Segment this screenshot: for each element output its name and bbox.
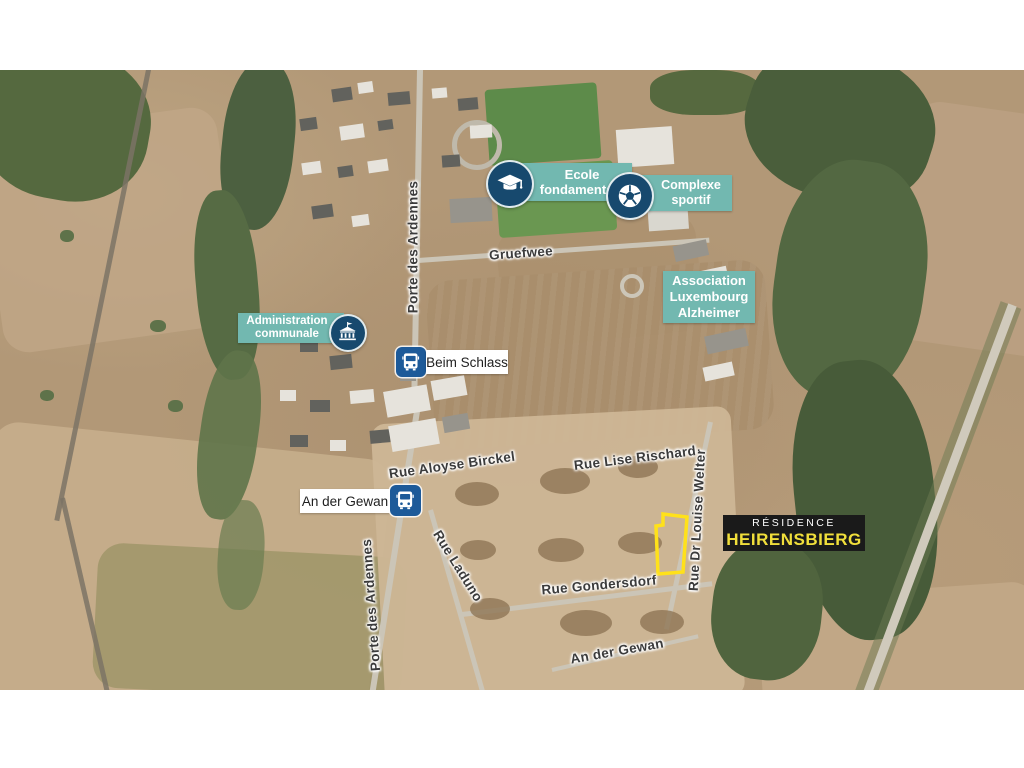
bus-stop-beim-schlass-marker: [396, 347, 426, 377]
football-pitch: [484, 82, 601, 166]
poi-label-administration-communale: Administration communale: [238, 313, 344, 343]
building: [351, 214, 369, 227]
dirt-mound: [640, 610, 684, 634]
building: [339, 123, 365, 140]
ecole-marker: [486, 160, 534, 208]
poi-label-line: Alzheimer: [663, 305, 755, 321]
poi-label-association-alzheimer: Association Luxembourg Alzheimer: [663, 271, 755, 323]
soccer-ball-icon: [615, 181, 645, 211]
map-figure: Porte des Ardennes Gruefwee Rue Aloyse B…: [0, 0, 1024, 768]
aerial-map: Porte des Ardennes Gruefwee Rue Aloyse B…: [0, 70, 1024, 690]
dirt-mound: [455, 482, 499, 506]
building: [470, 124, 493, 138]
building: [367, 159, 388, 174]
administration-marker: [329, 314, 367, 352]
poi-label-line: Association: [663, 273, 755, 289]
building: [301, 161, 321, 176]
church: [329, 354, 352, 370]
dirt-mound: [560, 610, 612, 636]
building: [432, 87, 448, 98]
building: [311, 204, 334, 220]
sports-hall: [616, 126, 675, 168]
residence-badge: RÉSIDENCE HEIRENSBIERG: [723, 515, 865, 551]
building: [357, 81, 373, 94]
building: [369, 429, 390, 444]
tree: [150, 320, 166, 332]
graduation-cap-icon: [495, 169, 525, 199]
building: [349, 389, 374, 404]
dirt-mound: [538, 538, 584, 562]
poi-label-line: sportif: [650, 193, 732, 208]
building: [458, 97, 479, 111]
building: [331, 87, 353, 103]
building: [387, 91, 410, 106]
bus-icon: [393, 488, 417, 512]
building: [299, 117, 318, 131]
tree: [40, 390, 54, 401]
town-hall-icon: [336, 321, 359, 344]
forest-patch: [650, 70, 760, 115]
dirt-mound: [618, 532, 662, 554]
poi-label-line: Complexe: [650, 178, 732, 193]
building: [702, 362, 734, 382]
building: [337, 165, 353, 178]
residence-badge-line1: RÉSIDENCE: [752, 517, 836, 529]
building: [442, 154, 461, 167]
dirt-mound: [460, 540, 496, 560]
building: [704, 328, 749, 354]
poi-label-line: communale: [238, 328, 336, 341]
bus-stop-label-an-der-gewan: An der Gewan: [300, 489, 390, 513]
tree: [168, 400, 183, 412]
building: [377, 119, 393, 131]
building: [280, 390, 296, 401]
residence-badge-line2: HEIRENSBIERG: [726, 530, 861, 550]
building: [330, 440, 346, 451]
bus-icon: [399, 350, 422, 373]
building-under-construction: [383, 384, 431, 417]
bus-stop-label-beim-schlass: Beim Schlass: [426, 350, 508, 374]
building: [310, 400, 330, 412]
bus-stop-an-der-gewan-marker: [390, 485, 421, 516]
complexe-marker: [606, 172, 654, 220]
poi-label-line: Luxembourg: [663, 289, 755, 305]
street-label-porte-des-ardennes-top: Porte des Ardennes: [406, 181, 421, 313]
poi-label-line: Administration: [238, 315, 336, 328]
tree: [60, 230, 74, 242]
building: [290, 435, 308, 447]
roundabout: [620, 274, 644, 298]
school-building: [449, 197, 492, 223]
